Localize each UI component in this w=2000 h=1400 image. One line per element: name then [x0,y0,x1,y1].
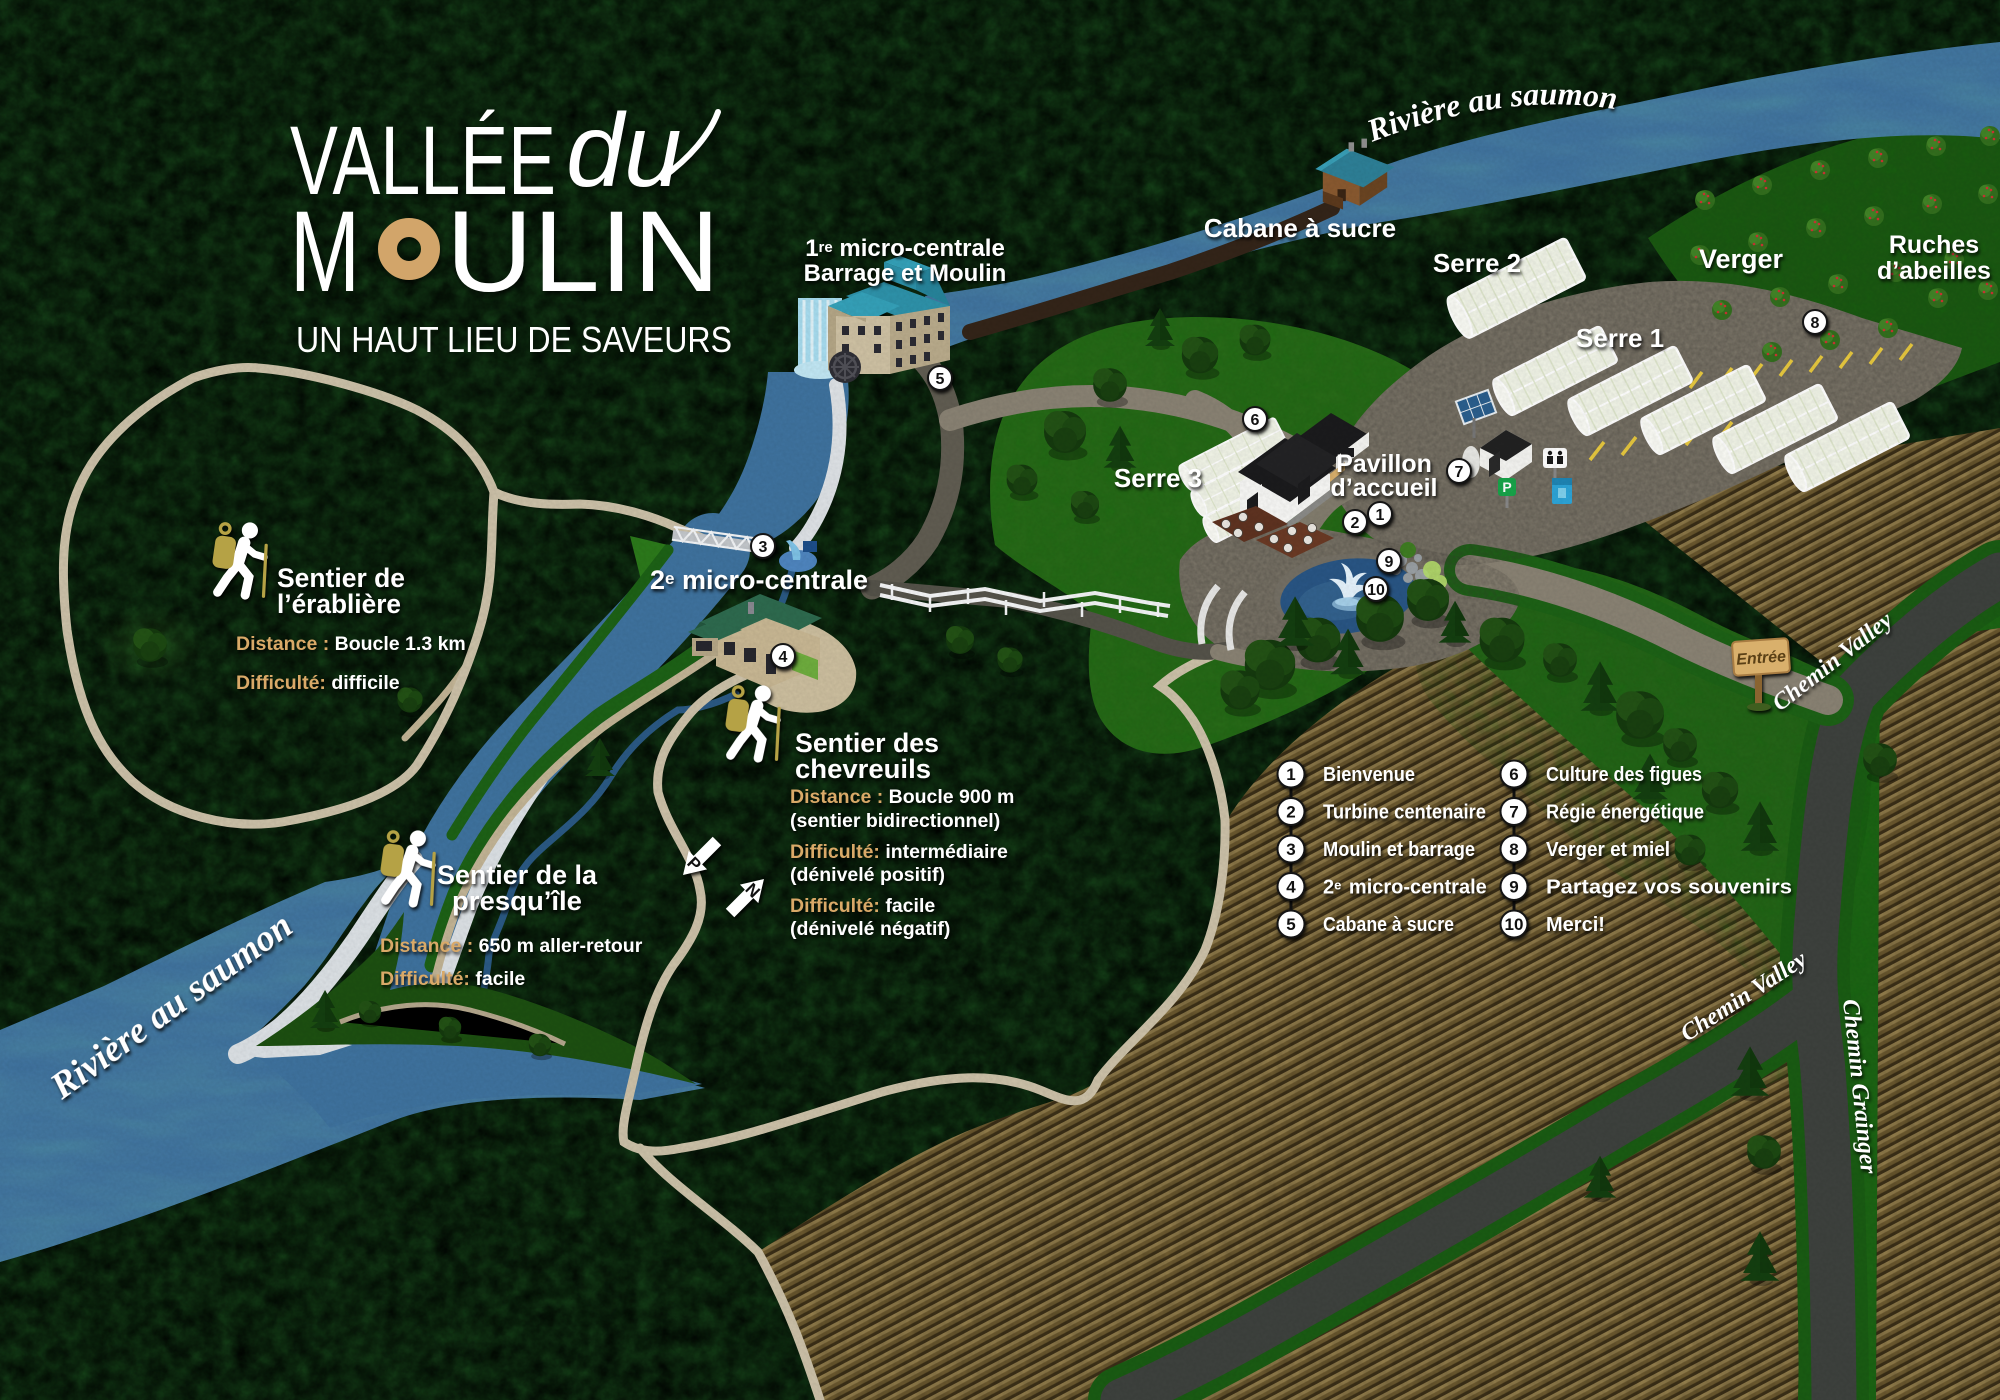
svg-text:10: 10 [1367,582,1385,599]
svg-text:Difficulté: intermédiaire: Difficulté: intermédiaire [790,841,1008,863]
svg-text:4: 4 [779,649,788,666]
svg-text:1: 1 [1286,765,1295,784]
svg-text:5: 5 [1286,915,1295,934]
svg-text:5: 5 [936,371,945,388]
svg-text:1: 1 [1376,507,1385,524]
svg-text:Cabane à sucre: Cabane à sucre [1323,914,1454,936]
svg-text:3: 3 [759,539,768,556]
svg-text:Ruches: Ruches [1889,231,1979,259]
svg-text:2e micro-centrale: 2e micro-centrale [1323,877,1487,899]
svg-text:Difficulté: difficile: Difficulté: difficile [236,672,400,694]
svg-text:10: 10 [1505,915,1524,934]
svg-text:7: 7 [1509,803,1518,822]
svg-text:Cabane à sucre: Cabane à sucre [1204,213,1396,243]
svg-text:Culture des figues: Culture des figues [1546,764,1702,786]
svg-text:ULIN: ULIN [446,188,720,316]
svg-text:2e micro-centrale: 2e micro-centrale [650,565,868,595]
svg-text:Serre 3: Serre 3 [1114,463,1202,493]
svg-text:Difficulté: facile: Difficulté: facile [380,968,525,990]
svg-text:(dénivelé positif): (dénivelé positif) [790,864,945,886]
svg-text:4: 4 [1286,878,1296,897]
svg-text:(dénivelé négatif): (dénivelé négatif) [790,918,950,940]
svg-text:Verger: Verger [1699,244,1784,274]
svg-text:Serre 2: Serre 2 [1433,248,1521,278]
svg-text:Bienvenue: Bienvenue [1323,764,1415,786]
svg-text:8: 8 [1509,840,1518,859]
svg-text:Entrée: Entrée [1736,648,1787,668]
svg-text:Partagez vos souvenirs: Partagez vos souvenirs [1546,877,1792,899]
svg-text:Turbine centenaire: Turbine centenaire [1323,802,1486,824]
svg-text:8: 8 [1811,315,1820,332]
svg-text:presqu’île: presqu’île [452,886,582,916]
svg-text:l’érablière: l’érablière [277,589,401,619]
svg-text:Barrage et Moulin: Barrage et Moulin [804,260,1007,287]
svg-text:M: M [290,188,360,316]
svg-text:d’accueil: d’accueil [1331,474,1438,502]
svg-text:Distance : Boucle 900 m: Distance : Boucle 900 m [790,786,1014,808]
svg-text:6: 6 [1251,412,1260,429]
svg-text:Difficulté: facile: Difficulté: facile [790,895,935,917]
svg-text:7: 7 [1455,464,1464,481]
svg-text:9: 9 [1509,878,1518,897]
svg-text:Distance : Boucle 1.3 km: Distance : Boucle 1.3 km [236,633,466,655]
svg-text:(sentier bidirectionnel): (sentier bidirectionnel) [790,810,1000,832]
svg-text:Serre 1: Serre 1 [1576,323,1664,353]
svg-text:Verger et miel: Verger et miel [1546,839,1670,861]
svg-text:Merci!: Merci! [1546,914,1605,936]
svg-text:3: 3 [1286,840,1295,859]
svg-text:d’abeilles: d’abeilles [1877,257,1991,285]
svg-text:Moulin et barrage: Moulin et barrage [1323,839,1475,861]
svg-text:9: 9 [1385,554,1394,571]
svg-text:2: 2 [1286,803,1295,822]
svg-text:2: 2 [1351,515,1360,532]
svg-text:Distance : 650 m aller-retour: Distance : 650 m aller-retour [380,935,643,957]
svg-text:1re micro-centrale: 1re micro-centrale [805,235,1005,262]
svg-text:Régie énergétique: Régie énergétique [1546,802,1704,824]
svg-text:chevreuils: chevreuils [795,754,931,784]
svg-text:UN HAUT LIEU DE SAVEURS: UN HAUT LIEU DE SAVEURS [296,319,732,360]
svg-text:6: 6 [1509,765,1518,784]
